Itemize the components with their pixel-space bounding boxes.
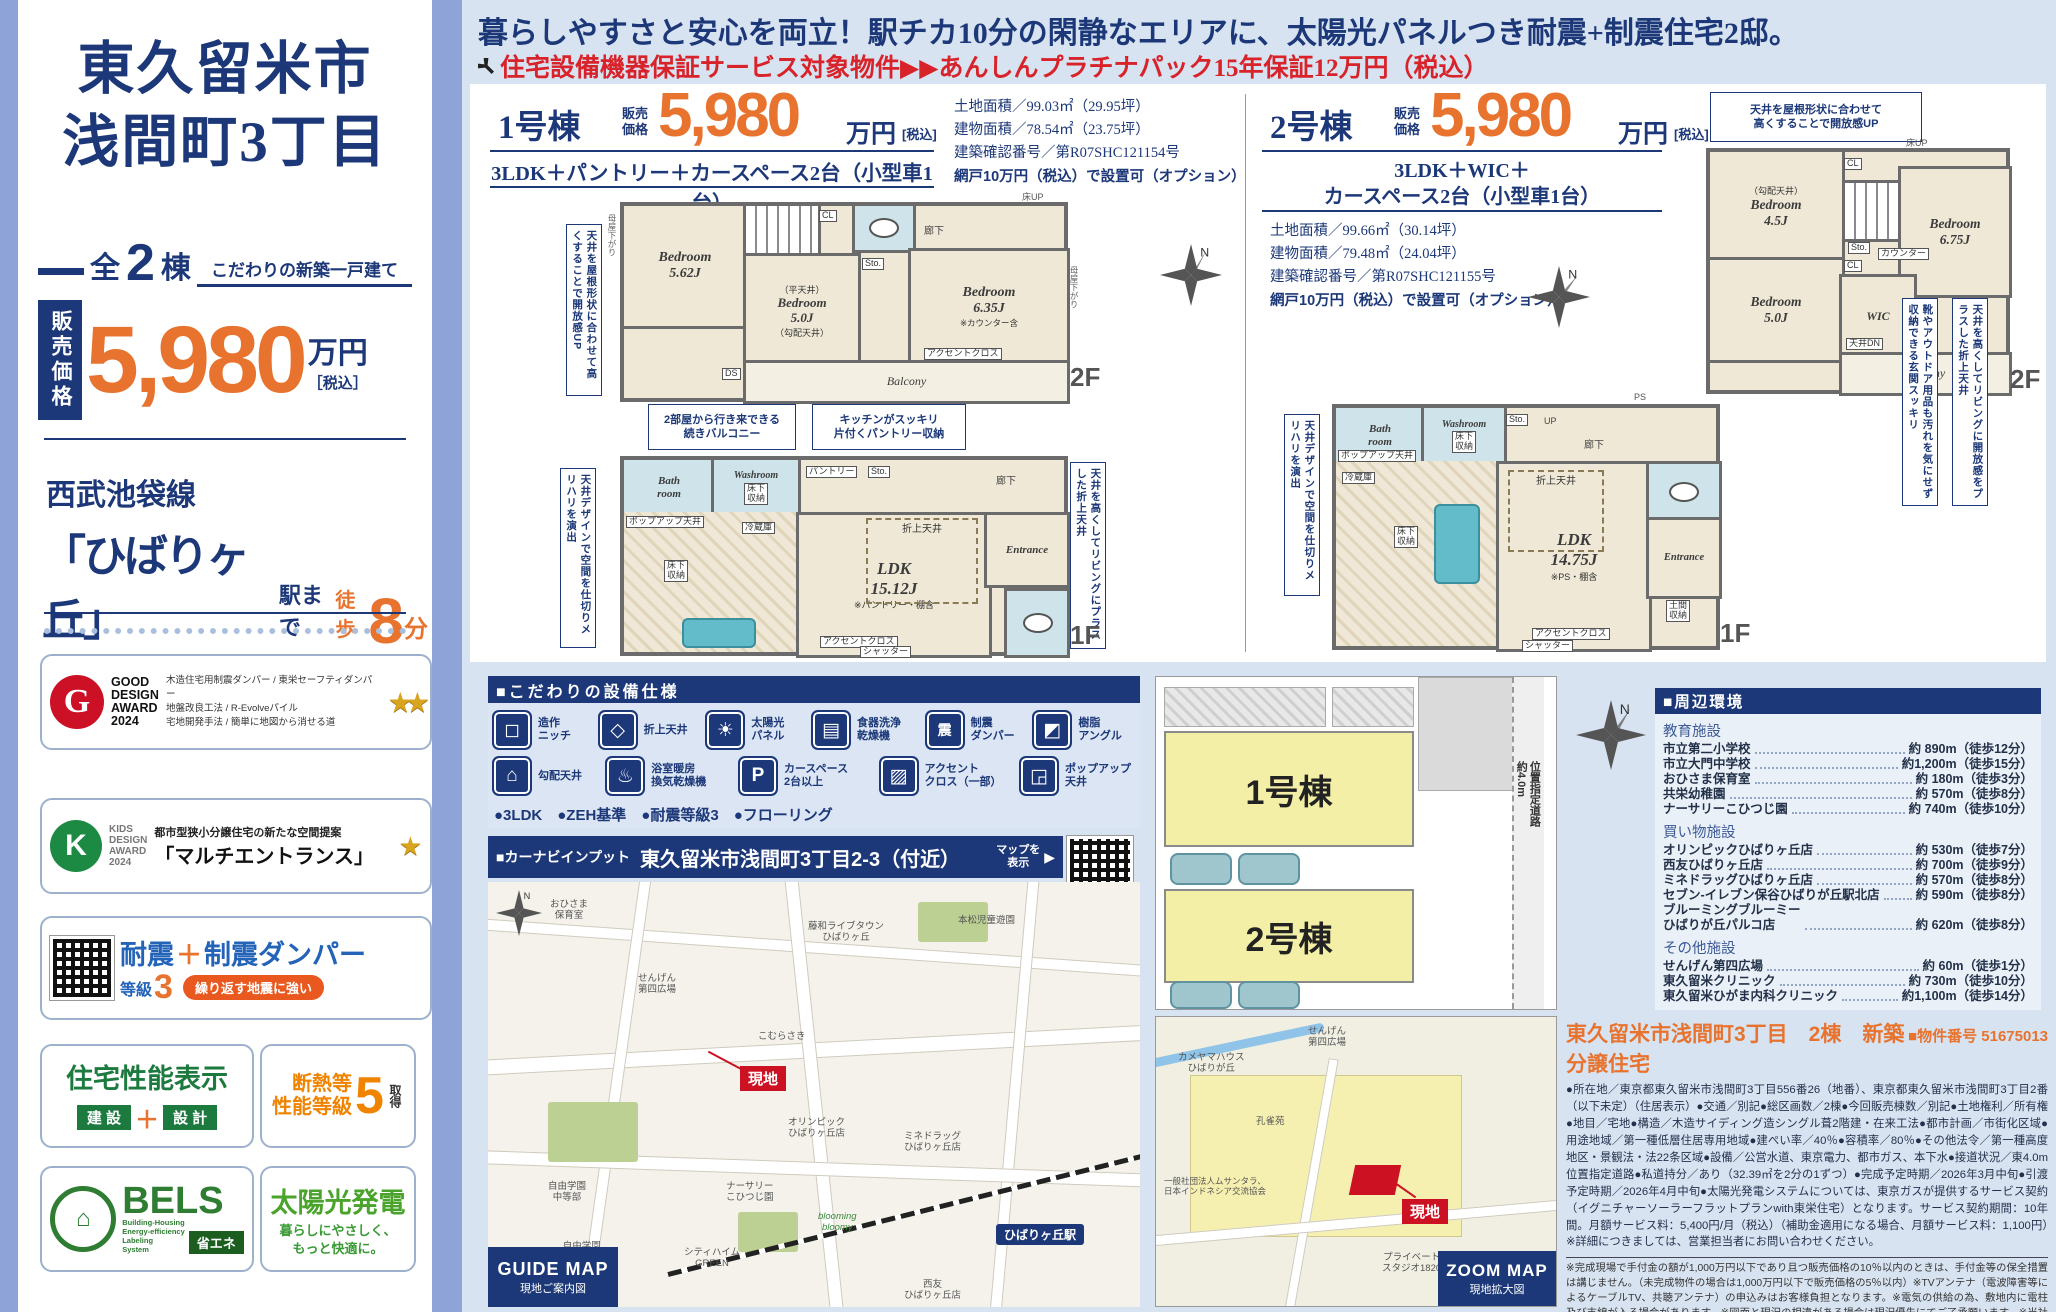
guide-map: N おひさま 保育室 せんげん 第四広場 藤和ライブタウン ひばりヶ丘 本松児童… bbox=[488, 882, 1140, 1307]
env-section-title: 教育施設 bbox=[1663, 720, 2033, 741]
site-unit2-block: 2号棟 bbox=[1164, 889, 1414, 983]
flyer-page: 東久留米市 浅間町3丁目 全 2 棟 こだわりの新築一戸建て 販売価格 5,98… bbox=[0, 0, 2056, 1312]
unit2-price-label: 販売 価格 bbox=[1394, 106, 1420, 137]
unit2-1f-plan: Bath room Washroom床下 収納 Sto. UP 廊下 PS 冷蔵… bbox=[1332, 404, 1720, 650]
wrench-icon bbox=[478, 58, 494, 74]
sidebar-divider-strip bbox=[432, 0, 462, 1312]
kids-design-text: 都市型狭小分譲住宅の新たな空間提案 「マルチエントランス」 bbox=[154, 824, 391, 869]
unit2-layout-line2: カースペース2台（小型車1台） bbox=[1262, 180, 1662, 209]
compass-icon: N bbox=[1528, 266, 1590, 328]
bels-badge: ⌂ BELS Building-Housing Energy-efficienc… bbox=[40, 1166, 254, 1272]
unit2-name: 2号棟 bbox=[1270, 100, 1353, 148]
room-label: Bedroom 5.0J bbox=[777, 296, 826, 326]
closet-label: CL bbox=[819, 210, 837, 222]
unit1-land-area: 土地面積／99.03㎡（29.95坪） bbox=[954, 96, 1246, 119]
unit1-rule-bottom bbox=[490, 186, 934, 188]
map-label: ミネドラッグ ひばりヶ丘店 bbox=[904, 1132, 961, 1154]
hall-label: 廊下 bbox=[1584, 436, 1604, 451]
popup-ceiling-label: ポップアップ天井 bbox=[1338, 450, 1416, 462]
map-label: 本松児童遊園 bbox=[958, 916, 1015, 927]
closet-label: CL bbox=[1844, 158, 1862, 170]
env-distance: 約 570m（徒歩8分） bbox=[1916, 873, 2033, 888]
toilet-room bbox=[852, 203, 916, 253]
property-title-row: 東久留米市浅間町3丁目 2棟 新築分譲住宅 ■物件番号 51675013 bbox=[1566, 1018, 2048, 1078]
room-label: Bedroom 5.0J bbox=[1750, 294, 1801, 325]
zoom-map: カメヤマハウス ひばりが丘 せんげん 第四広場 孔雀苑 一般社団法人ムサンタラ、… bbox=[1155, 1016, 1557, 1307]
unit1-rule-top bbox=[490, 150, 934, 152]
bels-logo-icon: ⌂ bbox=[50, 1186, 116, 1252]
storage-label: Sto. bbox=[868, 466, 890, 478]
unit1-callout-pantry: キッチンがスッキリ 片付くパントリー収納 bbox=[812, 404, 966, 450]
equipment-label: 食器洗浄 乾燥機 bbox=[857, 717, 901, 742]
site-hatch-strip bbox=[1164, 687, 1326, 727]
env-name: 共栄幼稚園 bbox=[1663, 787, 1726, 802]
bels-subtitle: Building-Housing Energy-efficiency Label… bbox=[122, 1218, 185, 1254]
toilet-icon bbox=[1669, 482, 1699, 502]
dotted-leader bbox=[1792, 812, 1905, 814]
env-row: 共栄幼稚園約 570m（徒歩8分） bbox=[1663, 787, 2033, 802]
good-design-award-label: GOOD DESIGN AWARD 2024 bbox=[111, 676, 159, 729]
shutter-label: シャッター bbox=[860, 646, 911, 658]
car-icon bbox=[1170, 981, 1232, 1009]
env-row: せんげん第四広場約 60m（徒歩1分） bbox=[1663, 959, 2033, 974]
kids-design-logo-icon: K bbox=[50, 820, 102, 872]
map-label: 自由学園 中等部 bbox=[548, 1182, 586, 1204]
env-section-title: 買い物施設 bbox=[1663, 821, 2033, 842]
env-row: 東久留米クリニック約 730m（徒歩10分） bbox=[1663, 974, 2033, 989]
headline: 暮らしやすさと安心を両立！駅チカ10分の閑静なエリアに、太陽光パネルつき耐震+制… bbox=[478, 8, 2048, 52]
env-row: おひさま保育室約 180m（徒歩3分） bbox=[1663, 772, 2033, 787]
svg-text:N: N bbox=[1620, 701, 1630, 717]
map-label: せんげん 第四広場 bbox=[1308, 1027, 1346, 1049]
map-label: blooming bloomy bbox=[818, 1212, 857, 1234]
sloped-ceiling-note: （勾配天井） bbox=[1749, 184, 1803, 197]
kitchen-sink bbox=[1434, 504, 1480, 584]
page-title: 東久留米市 浅間町3丁目 bbox=[18, 34, 432, 180]
room-label: Bedroom 5.62J bbox=[659, 250, 712, 282]
unit1-callout-roof: 天井を屋根形状に合わせて高くすることで開放感UP bbox=[566, 224, 602, 396]
room: （平天井） Bedroom 5.0J （勾配天井） bbox=[743, 253, 861, 369]
insulation-line2: 性能等級 bbox=[272, 1096, 352, 1119]
price-tax: ［税込］ bbox=[308, 372, 368, 393]
env-name: ナーサリーこひつじ園 bbox=[1663, 802, 1788, 817]
gold-star-icon: ★ bbox=[399, 831, 422, 862]
ldk-note: ※PS・棚含 bbox=[1551, 570, 1598, 583]
env-row: セブン-イレブン保谷ひばりが丘駅北店約 590m（徒歩8分） bbox=[1663, 888, 2033, 903]
sidebar: 東久留米市 浅間町3丁目 全 2 棟 こだわりの新築一戸建て 販売価格 5,98… bbox=[18, 0, 432, 1312]
page-title-line2: 浅間町3丁目 bbox=[18, 107, 432, 180]
svg-text:N: N bbox=[1568, 267, 1577, 281]
unit1-confirmation-number: 建築確認番号／第R07SHC121154号 bbox=[954, 142, 1246, 165]
room-label: Entrance bbox=[1664, 552, 1704, 564]
rule-right bbox=[197, 284, 412, 287]
solar-title: 太陽光発電 bbox=[271, 1181, 406, 1220]
dotted-separator bbox=[44, 628, 406, 634]
property-fine-print: ※完成現場で手付金の額が1,000万円以下であり且つ販売価格の10％以内のときは… bbox=[1566, 1262, 2048, 1312]
map-display-label: マップを 表示 bbox=[996, 844, 1040, 870]
env-distance: 約1,200m（徒歩15分） bbox=[1902, 757, 2033, 772]
equipment-item: ◲ポップアップ 天井 bbox=[1019, 756, 1136, 796]
room-label: Bedroom 6.35J bbox=[963, 285, 1016, 317]
equipment-header: ■こだわりの設備仕様 bbox=[488, 676, 1140, 703]
doma-storage-label: 土間 収納 bbox=[1666, 600, 1690, 622]
dotted-leader bbox=[1755, 752, 1905, 754]
accent-cloth-label: アクセントクロス bbox=[1532, 628, 1610, 640]
closet-label: CL bbox=[1844, 260, 1862, 272]
tagline-wrap: こだわりの新築一戸建て bbox=[197, 256, 412, 287]
equipment-label: 太陽光 パネル bbox=[751, 717, 784, 742]
unit2-callout-roof: 天井を屋根形状に合わせて 高くすることで開放感UP bbox=[1710, 92, 1922, 142]
unit2-callout-genkan: 靴やアウトドア用品も汚れを気にせず収納できる玄関スッキリ bbox=[1902, 298, 1938, 506]
env-section-title: その他施設 bbox=[1663, 937, 2033, 958]
equipment-label: ポップアップ 天井 bbox=[1065, 763, 1131, 788]
unit2-price: 5,980 bbox=[1430, 80, 1570, 151]
unit2-rule-bottom bbox=[1262, 210, 1662, 212]
property-summary: 東久留米市浅間町3丁目 2棟 新築分譲住宅 ■物件番号 51675013 ●所在… bbox=[1566, 1018, 2048, 1312]
zoom-map-title-text: ZOOM MAP bbox=[1446, 1261, 1548, 1281]
units-card: 1号棟 販売 価格 5,980 万円 [税込] 3LDK＋パントリー＋カースペー… bbox=[470, 84, 2046, 662]
unit2-price-tax: [税込] bbox=[1674, 124, 1709, 143]
unit2-price-unit: 万円 bbox=[1618, 114, 1668, 150]
site-plan: 1号棟 2号棟 位置指定道路 約4.0m bbox=[1155, 676, 1557, 1010]
dotted-leader bbox=[1805, 928, 1912, 930]
site-road-label: 位置指定道路 約4.0m bbox=[1514, 761, 1540, 827]
guide-map-title-text: GUIDE MAP bbox=[497, 1259, 608, 1280]
damper-icon: 震 bbox=[925, 710, 965, 750]
performance-badge: 住宅性能表示 建 設 ＋ 設 計 bbox=[40, 1044, 254, 1148]
unit1-1f-plan: Bath room Washroom床下 収納 冷蔵庫 床下 収納 造作ニッチ … bbox=[620, 456, 1068, 656]
equipment-label: 樹脂 アングル bbox=[1078, 717, 1122, 742]
env-name: 東久留米クリニック bbox=[1663, 974, 1776, 989]
env-name: ブルーミングブルーミー ひばりが丘パルコ店 bbox=[1663, 903, 1801, 933]
kids-design-award-badge: K KIDS DESIGN AWARD 2024 都市型狭小分譲住宅の新たな空間… bbox=[40, 798, 432, 894]
unit2-building-area: 建物面積／79.48㎡（24.04坪） bbox=[1270, 243, 1562, 266]
toilet-room bbox=[1646, 461, 1722, 525]
unit1-2f-plan: Bedroom 5.62J 廊下 CL CL （平天井） Bedroom 5.0… bbox=[620, 202, 1068, 402]
equipment-label: 制震 ダンパー bbox=[971, 717, 1015, 742]
map-label: 藤和ライブタウン ひばりヶ丘 bbox=[808, 922, 884, 944]
map-label: シティハイム GREEN bbox=[684, 1248, 740, 1270]
env-distance: 約 890m（徒歩12分） bbox=[1909, 742, 2033, 757]
arrow-right-icon: ▶ bbox=[1044, 849, 1055, 866]
equipment-row2: ⌂勾配天井 ♨浴室暖房 換気乾燥機 Pカースペース 2台以上 ▨アクセント クロ… bbox=[488, 750, 1140, 796]
energy-saving-chip: 省エネ bbox=[189, 1231, 244, 1254]
equipment-item: ⌂勾配天井 bbox=[492, 756, 599, 796]
env-distance: 約 60m（徒歩1分） bbox=[1923, 959, 2033, 974]
subline-row: 住宅設備機器保証サービス対象物件▶▶あんしんプラチナパック15年保証12万円（税… bbox=[478, 48, 1488, 84]
balcony-label: Balcony bbox=[887, 375, 926, 389]
ps-label: PS bbox=[1634, 392, 1646, 402]
fridge-label: 冷蔵庫 bbox=[1342, 472, 1375, 484]
price-label: 販売価格 bbox=[38, 300, 82, 420]
env-distance: 約 180m（徒歩3分） bbox=[1916, 772, 2033, 787]
dotted-leader bbox=[1755, 767, 1898, 769]
equipment-label: 造作 ニッチ bbox=[538, 717, 571, 742]
env-row: ミネドラッグひばりヶ丘店約 570m（徒歩8分） bbox=[1663, 873, 2033, 888]
zoom-map-subtitle: 現地拡大図 bbox=[1470, 1281, 1525, 1297]
property-body: ●所在地／東京都東久留米市浅間町3丁目556番26（地番）、東京都東久留米市浅間… bbox=[1566, 1082, 2048, 1251]
dotted-leader bbox=[1767, 969, 1919, 971]
unit2-layout-line1: 3LDK＋WIC＋ bbox=[1262, 154, 1662, 183]
env-distance: 約 530m（徒歩7分） bbox=[1916, 843, 2033, 858]
room-label: Bedroom 4.5J bbox=[1750, 197, 1801, 228]
equipment-item: ☀太陽光 パネル bbox=[705, 710, 807, 750]
room-label: Washroom bbox=[734, 470, 778, 482]
svg-text:N: N bbox=[524, 891, 531, 901]
resin-angle-icon: ◩ bbox=[1032, 710, 1072, 750]
grade-number: 3 bbox=[154, 972, 173, 1003]
unit1-1f-label: 1F bbox=[1070, 620, 1100, 651]
zoom-map-title: ZOOM MAP 現地拡大図 bbox=[1438, 1251, 1556, 1306]
map-label: オリンピック ひばりヶ丘店 bbox=[788, 1118, 845, 1140]
solar-panel-icon: ☀ bbox=[705, 710, 745, 750]
equipment-item: ◩樹脂 アングル bbox=[1032, 710, 1136, 750]
price-value: 5,980 bbox=[86, 313, 304, 408]
env-row: ナーサリーこひつじ園約 740m（徒歩10分） bbox=[1663, 802, 2033, 817]
insulation-label: 断熱等 性能等級 bbox=[272, 1073, 352, 1119]
seismic-badge: 耐震 ＋ 制震ダンパー 等級 3 繰り返す地震に強い bbox=[40, 916, 432, 1020]
solar-badge: 太陽光発電 暮らしにやさしく、 もっと快適に。 bbox=[260, 1166, 416, 1272]
underfloor-storage-label: 床下 収納 bbox=[1452, 431, 1476, 453]
walk-minutes: 8 bbox=[368, 594, 404, 648]
room: Bedroom 5.0J bbox=[1707, 257, 1845, 363]
env-name: オリンピックひばりヶ丘店 bbox=[1663, 843, 1813, 858]
washroom: Washroom床下 収納 bbox=[711, 457, 801, 518]
unit-count-row: 全 2 棟 こだわりの新築一戸建て bbox=[38, 240, 412, 287]
env-name: ミネドラッグひばりヶ丘店 bbox=[1663, 873, 1813, 888]
unit2-confirmation-number: 建築確認番号／第R07SHC121155号 bbox=[1270, 266, 1562, 289]
svg-text:N: N bbox=[1200, 245, 1209, 259]
good-design-logo-icon: G bbox=[50, 675, 104, 729]
kitchen-sink bbox=[682, 618, 756, 648]
ceiling-dn-label: 天井DN bbox=[1846, 338, 1883, 350]
toilet-room bbox=[1004, 588, 1070, 658]
env-name: おひさま保育室 bbox=[1663, 772, 1751, 787]
unit1-price: 5,980 bbox=[658, 80, 798, 151]
equipment-item: ◇折上天井 bbox=[598, 710, 702, 750]
entrance: Entrance bbox=[984, 512, 1070, 588]
unit2-screen-option: 網戸10万円（税込）で設置可（オプション） bbox=[1270, 290, 1562, 313]
equipment-item: Pカースペース 2台以上 bbox=[738, 756, 873, 796]
property-number: ■物件番号 51675013 bbox=[1908, 1025, 2048, 1046]
balcony: Balcony bbox=[743, 360, 1070, 404]
hall-label: 廊下 bbox=[924, 222, 944, 237]
seishin-word: 制震ダンパー bbox=[204, 933, 366, 972]
underfloor-storage-label: 床下 収納 bbox=[664, 560, 688, 582]
design-chip: 設 計 bbox=[163, 1105, 217, 1130]
fridge-label: 冷蔵庫 bbox=[742, 522, 775, 534]
unit2-1f-label: 1F bbox=[1720, 618, 1750, 649]
carnavi-bar: ■カーナビインプット 東久留米市浅間町3丁目2-3（付近） マップを 表示 ▶ bbox=[488, 836, 1063, 878]
env-distance: 約 700m（徒歩9分） bbox=[1916, 858, 2033, 873]
stairs bbox=[743, 203, 821, 259]
divider-rule bbox=[44, 438, 406, 440]
env-name: 東久留米ひがま内科クリニック bbox=[1663, 989, 1838, 1004]
toilet-icon bbox=[1023, 613, 1053, 633]
station-badge: ひばりヶ丘駅 bbox=[996, 1224, 1084, 1245]
room-label: Bedroom 6.75J bbox=[1929, 216, 1980, 247]
bathroom: Bath room bbox=[621, 457, 717, 518]
map-label: プライベート スタジオ1820 bbox=[1382, 1253, 1441, 1275]
environment-panel: ■周辺環境 教育施設 市立第二小学校約 890m（徒歩12分） 市立大門中学校約… bbox=[1655, 688, 2041, 1010]
tagline: こだわりの新築一戸建て bbox=[197, 256, 412, 281]
site-parcel bbox=[1349, 1165, 1401, 1195]
unit1-callout-balcony: 2部屋から行き来できる 続きバルコニー bbox=[648, 404, 796, 450]
taishin-word: 耐震 bbox=[120, 933, 174, 972]
counter-note: ※カウンター含 bbox=[960, 317, 1018, 329]
zen-label: 全 bbox=[90, 243, 120, 287]
storage-label: Sto. bbox=[862, 258, 884, 270]
kids-design-award-label: KIDS DESIGN AWARD 2024 bbox=[109, 824, 147, 868]
construction-chip: 建 設 bbox=[77, 1105, 131, 1130]
env-distance: 約 570m（徒歩8分） bbox=[1916, 787, 2033, 802]
unit2-callout-oriage: 天井を高くしてリビングに開放感をプラスした折上天井 bbox=[1952, 298, 1988, 506]
moya-sagari-label: 母屋下がり bbox=[1068, 266, 1080, 309]
ds-label: DS bbox=[722, 368, 741, 380]
divider-rule-2 bbox=[44, 612, 406, 614]
insulation-grade: 5 bbox=[355, 1073, 384, 1120]
equipment-item: ▤食器洗浄 乾燥機 bbox=[811, 710, 921, 750]
unit1-2f-label: 2F bbox=[1070, 362, 1100, 393]
env-distance: 約 620m（徒歩8分） bbox=[1916, 918, 2033, 933]
entrance: Entrance bbox=[1646, 517, 1722, 599]
unit1-name: 1号棟 bbox=[498, 100, 581, 148]
map-label: せんげん 第四広場 bbox=[638, 974, 676, 996]
room-label: Entrance bbox=[1006, 544, 1048, 557]
rail-line: 西武池袋線 bbox=[46, 470, 196, 514]
compass-icon: N bbox=[1576, 700, 1646, 770]
dotted-leader bbox=[1730, 797, 1912, 799]
grade-label: 等級 bbox=[120, 976, 152, 1000]
guide-map-subtitle: 現地ご案内図 bbox=[520, 1280, 586, 1296]
property-title: 東久留米市浅間町3丁目 2棟 新築分譲住宅 bbox=[1566, 1018, 1908, 1078]
site-hatch-strip bbox=[1332, 687, 1414, 727]
equipment-label: カースペース 2台以上 bbox=[784, 763, 848, 788]
env-name: せんげん第四広場 bbox=[1663, 959, 1763, 974]
environment-list: 教育施設 市立第二小学校約 890m（徒歩12分） 市立大門中学校約1,200m… bbox=[1655, 714, 2041, 1004]
folded-ceiling-label: 折上天井 bbox=[902, 520, 942, 535]
unit2-callout-design: 天井デザインで空間を仕切りメリハリを演出 bbox=[1284, 414, 1320, 596]
car-icon bbox=[1238, 853, 1300, 885]
map-label: 孔雀苑 bbox=[1256, 1117, 1285, 1128]
accent-cloth-label: アクセントクロス bbox=[924, 348, 1002, 360]
sloped-ceiling-note: （勾配天井） bbox=[775, 326, 829, 339]
dotted-leader bbox=[1755, 782, 1912, 784]
site-marker: 現地 bbox=[740, 1066, 786, 1091]
map-label: おひさま 保育室 bbox=[550, 900, 588, 922]
env-distance: 約 740m（徒歩10分） bbox=[1909, 802, 2033, 817]
unit1-building-area: 建物面積／78.54㎡（23.75坪） bbox=[954, 119, 1246, 142]
parking-icon: P bbox=[738, 756, 778, 796]
equipment-bullets: ●3LDK ●ZEH基準 ●耐震等級3 ●フローリング bbox=[488, 796, 1140, 825]
map-green-area bbox=[548, 1102, 638, 1162]
plus-sign: ＋ bbox=[176, 935, 202, 972]
unit1-callout-design: 天井デザインで空間を仕切りメリハリを演出 bbox=[560, 468, 596, 648]
qr-code[interactable] bbox=[50, 936, 114, 1000]
car-icon bbox=[1170, 853, 1232, 885]
pantry-label: パントリー bbox=[806, 466, 857, 478]
storage-label: Sto. bbox=[1506, 414, 1528, 426]
unit1-screen-option: 網戸10万円（税込）で設置可（オプション） bbox=[954, 166, 1246, 189]
unit1-price-tax: [税込] bbox=[902, 124, 937, 143]
gold-star-icon: ★★ bbox=[388, 686, 422, 719]
equipment-label: 浴室暖房 換気乾燥機 bbox=[651, 763, 706, 788]
dishwasher-icon: ▤ bbox=[811, 710, 851, 750]
floor-up-label: 床UP bbox=[1022, 190, 1044, 203]
up-label: UP bbox=[1544, 416, 1557, 426]
env-distance: 約1,100m（徒歩14分） bbox=[1902, 989, 2033, 1004]
env-row: 市立大門中学校約1,200m（徒歩15分） bbox=[1663, 757, 2033, 772]
map-label: 一般社団法人ムサンタラ、 日本インドネシア交流協会 bbox=[1164, 1177, 1266, 1197]
env-name: 市立第二小学校 bbox=[1663, 742, 1751, 757]
env-row: オリンピックひばりヶ丘店約 530m（徒歩7分） bbox=[1663, 843, 2033, 858]
good-design-award-badge: G GOOD DESIGN AWARD 2024 木造住宅用制震ダンパー / 東… bbox=[40, 654, 432, 750]
dotted-leader bbox=[1780, 984, 1905, 986]
accent-cloth-icon: ▨ bbox=[879, 756, 919, 796]
env-distance: 約 590m（徒歩8分） bbox=[1916, 888, 2033, 903]
dotted-leader bbox=[1817, 883, 1912, 885]
guide-map-title: GUIDE MAP 現地ご案内図 bbox=[488, 1247, 618, 1307]
neighbor-building bbox=[1418, 677, 1514, 791]
environment-header: ■周辺環境 bbox=[1655, 688, 2041, 714]
equipment-item: ◻造作 ニッチ bbox=[492, 710, 594, 750]
room-label: Bath room bbox=[657, 475, 681, 500]
price-unit-wrap: 万円 ［税込］ bbox=[308, 328, 368, 393]
carnavi-address: 東久留米市浅間町3丁目2-3（付近） bbox=[640, 843, 960, 872]
equipment-label: アクセント クロス（一部） bbox=[925, 763, 1002, 788]
dotted-leader bbox=[1817, 853, 1912, 855]
env-row: 市立第二小学校約 890m（徒歩12分） bbox=[1663, 742, 2033, 757]
map-label: ナーサリー こひつじ園 bbox=[726, 1182, 774, 1204]
unit2-land-area: 土地面積／99.66㎡（30.14坪） bbox=[1270, 220, 1562, 243]
compass-icon: N bbox=[496, 890, 542, 936]
car-icon bbox=[1238, 981, 1300, 1009]
site-marker: 現地 bbox=[1402, 1199, 1448, 1224]
seismic-text: 耐震 ＋ 制震ダンパー 等級 3 繰り返す地震に強い bbox=[120, 933, 422, 1003]
map-display-button[interactable]: マップを 表示 ▶ bbox=[996, 844, 1055, 870]
performance-title: 住宅性能表示 bbox=[66, 1057, 228, 1096]
moya-sagari-label: 母屋下がり bbox=[606, 214, 618, 257]
equipment-item: ▨アクセント クロス（一部） bbox=[879, 756, 1014, 796]
bels-text: BELS Building-Housing Energy-efficiency … bbox=[122, 1184, 244, 1254]
washroom: Washroom床下 収納 bbox=[1421, 405, 1507, 467]
room-label: Bath room bbox=[1368, 423, 1392, 448]
hall-label: 廊下 bbox=[996, 472, 1016, 487]
bels-name: BELS bbox=[122, 1184, 244, 1218]
folded-ceiling-label: 折上天井 bbox=[1536, 472, 1576, 487]
room: Bedroom 5.62J bbox=[621, 203, 749, 329]
niche-icon: ◻ bbox=[492, 710, 532, 750]
price-unit: 万円 bbox=[308, 328, 368, 372]
unit-count: 2 bbox=[126, 240, 155, 287]
page-title-line1: 東久留米市 bbox=[18, 34, 432, 107]
equipment-label: 折上天井 bbox=[644, 724, 688, 737]
env-row: 東久留米ひがま内科クリニック約1,100m（徒歩14分） bbox=[1663, 989, 2033, 1004]
unit2-2f-label: 2F bbox=[2010, 364, 2040, 395]
underfloor-storage-label: 床下 収納 bbox=[1394, 526, 1418, 548]
env-distance: 約 730m（徒歩10分） bbox=[1909, 974, 2033, 989]
toilet-icon bbox=[869, 218, 899, 238]
insulation-get: 取得 bbox=[387, 1084, 404, 1108]
solar-subtitle: 暮らしにやさしく、 もっと快適に。 bbox=[279, 1222, 396, 1257]
env-name: 西友ひばりヶ丘店 bbox=[1663, 858, 1763, 873]
rule-left bbox=[38, 268, 84, 275]
unit2-details: 土地面積／99.66㎡（30.14坪） 建物面積／79.48㎡（24.04坪） … bbox=[1270, 220, 1562, 313]
kids-design-line2: 「マルチエントランス」 bbox=[154, 840, 391, 869]
counter-label: カウンター bbox=[1878, 248, 1929, 260]
bath-dryer-icon: ♨ bbox=[605, 756, 645, 796]
equipment-item: 震制震 ダンパー bbox=[925, 710, 1029, 750]
